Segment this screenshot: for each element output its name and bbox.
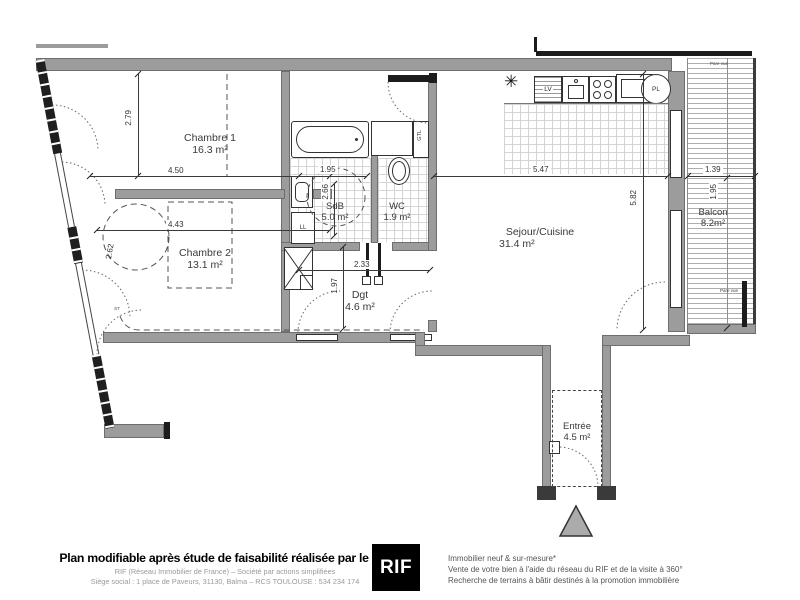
footer-service-line: Immobilier neuf & sur-mesure* (448, 553, 748, 564)
floor-plan-page: GTL LL ✳ LV (0, 0, 800, 600)
room-name: Entrée (551, 421, 603, 432)
dimline-chambre2-width (97, 230, 330, 231)
room-label-entree: Entrée 4.5 m² (551, 421, 603, 443)
door-swing-bathroom (388, 82, 429, 123)
dimension-ticks (87, 71, 758, 333)
room-area: 4.5 m² (551, 432, 603, 443)
dim-balcon-depth: 1.95 (709, 182, 718, 202)
room-name: Sejour/Cuisine (487, 226, 593, 238)
door-swing-window-1 (298, 291, 340, 333)
room-area: 5.0 m² (312, 212, 358, 223)
dim-balcon-width: 1.39 (703, 165, 723, 174)
room-label-wc: WC 1.9 m² (374, 201, 420, 223)
room-label-chambre2: Chambre 2 13.1 m² (155, 247, 255, 271)
room-label-sdb: SdB 5.0 m² (312, 201, 358, 223)
room-label-balcon: Balcon 8.2m² (691, 207, 735, 229)
room-name: WC (374, 201, 420, 212)
bed-outline-dashed (168, 202, 232, 288)
door-swing-sejour (617, 282, 665, 330)
dim-sejour-depth: 5.82 (629, 188, 638, 208)
footer: Plan modifiable après étude de faisabili… (0, 540, 800, 600)
dim-sdb-depth: 2.66 (321, 182, 330, 202)
room-label-dgt: Dgt 4.6 m² (335, 289, 385, 313)
footer-service-line: Vente de votre bien à l'aide du réseau d… (448, 564, 748, 575)
footer-services-block: Immobilier neuf & sur-mesure* Vente de v… (448, 553, 748, 586)
dimline-dgt-width (299, 270, 430, 271)
dimline-chambre1-depth (138, 74, 139, 177)
footer-legal-line1: RIF (Réseau Immobilier de France) – Soci… (58, 567, 392, 576)
rif-logo-text: RIF (380, 557, 412, 579)
door-swing-window-2 (390, 291, 432, 333)
door-swing-chambre2-b (97, 310, 141, 354)
plan-linework (0, 0, 800, 545)
dim-chambre2-width: 4.43 (166, 220, 186, 229)
room-area: 13.1 m² (155, 259, 255, 271)
room-area: 4.6 m² (335, 301, 385, 313)
dim-sdb-width: 1.95 (318, 165, 338, 174)
room-name: Dgt (335, 289, 385, 301)
rif-logo: RIF (372, 544, 420, 591)
room-area: 8.2m² (691, 218, 735, 229)
ceiling-dashed-line (120, 316, 424, 330)
room-label-chambre1: Chambre 1 16.3 m² (155, 132, 265, 156)
footer-headline: Plan modifiable après étude de faisabili… (58, 551, 392, 565)
room-area: 31.4 m² (487, 238, 593, 250)
room-name: Chambre 1 (155, 132, 265, 144)
window-left-1-opening (58, 154, 72, 227)
entrance-arrow (560, 506, 592, 536)
room-area: 16.3 m² (155, 144, 265, 156)
dimline-sejour-width (434, 176, 668, 177)
dimline-sdb-width (299, 176, 367, 177)
room-label-sejour: Sejour/Cuisine 31.4 m² (487, 226, 593, 250)
dim-sejour-width: 5.47 (531, 165, 551, 174)
room-name: Chambre 2 (155, 247, 255, 259)
pare-vue-label-bottom: Pare vue (718, 288, 740, 293)
dimline-balcon-width (688, 176, 755, 177)
floor-plan: GTL LL ✳ LV (0, 0, 800, 545)
st-label: ST (110, 306, 124, 311)
dim-chambre1-width: 4.50 (166, 166, 186, 175)
door-swing-entry (560, 447, 598, 486)
window-left-2-opening (79, 263, 97, 355)
dim-dgt-width: 2.33 (352, 260, 372, 269)
dim-chambre1-depth: 2.79 (124, 108, 133, 128)
dimline-dgt-depth (343, 247, 344, 329)
dimline-sejour-depth (643, 74, 644, 330)
footer-left-block: Plan modifiable après étude de faisabili… (58, 551, 392, 586)
room-name: Balcon (691, 207, 735, 218)
footer-service-line: Recherche de terrains à bâtir destinés à… (448, 575, 748, 586)
room-name: SdB (312, 201, 358, 212)
pare-vue-label-top: Pare vue (708, 61, 730, 66)
dimline-chambre1-width (90, 176, 330, 177)
footer-legal-line2: Siège social : 1 place de Paveurs, 31130… (58, 577, 392, 586)
room-area: 1.9 m² (374, 212, 420, 223)
